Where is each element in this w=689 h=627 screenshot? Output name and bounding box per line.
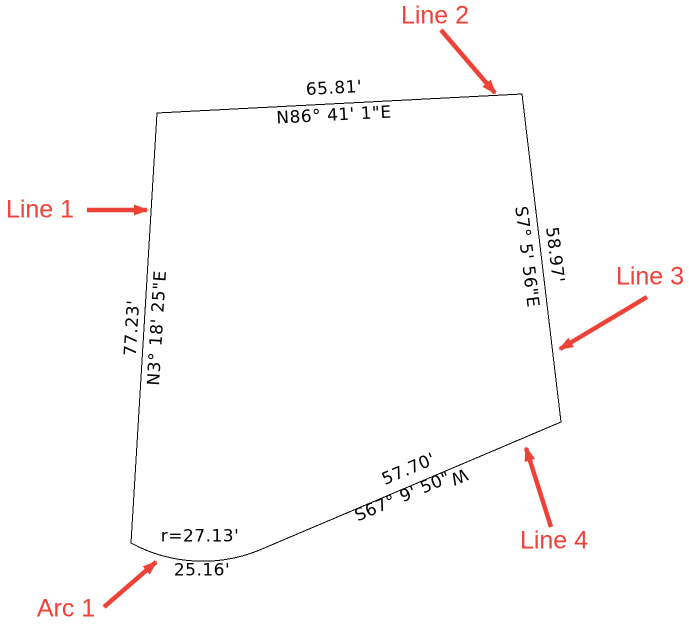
arc1-length-label: 25.16' [174, 563, 230, 580]
line2-callout-arrow [441, 30, 495, 93]
line4-callout-arrow [526, 448, 551, 527]
line1-length-label: 77.23' [123, 299, 143, 356]
callout-line2: Line 2 [401, 4, 469, 29]
callout-line3: Line 3 [616, 265, 684, 290]
callout-line4: Line 4 [520, 529, 588, 554]
callout-line1: Line 1 [6, 198, 74, 223]
line2-length-label: 65.81' [305, 79, 362, 99]
parcel-boundary [131, 94, 561, 561]
plat-drawing-canvas: 65.81' N86° 41' 1"E 58.97' S7° 5' 56"E 7… [0, 0, 689, 627]
arc1-callout-arrow [104, 562, 156, 607]
arc1-radius-label: r=27.13' [161, 529, 240, 546]
callout-arc1: Arc 1 [37, 597, 95, 622]
line3-callout-arrow [560, 297, 647, 349]
